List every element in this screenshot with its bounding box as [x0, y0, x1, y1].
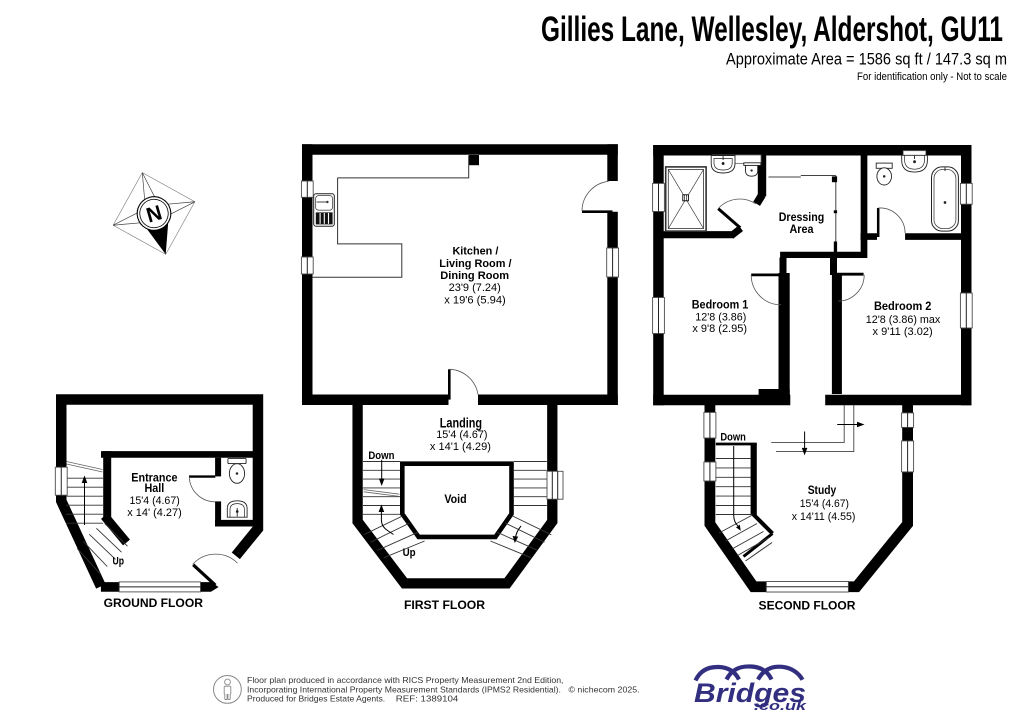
- svg-text:x 14'11 (4.55): x 14'11 (4.55): [792, 511, 856, 523]
- svg-text:For identification only - Not: For identification only - Not to scale: [857, 71, 1007, 83]
- svg-text:12'8 (3.86) max: 12'8 (3.86) max: [866, 314, 941, 326]
- svg-text:15'4 (4.67): 15'4 (4.67): [436, 429, 487, 441]
- svg-text:x 9'8 (2.95): x 9'8 (2.95): [692, 323, 747, 335]
- svg-text:Landing: Landing: [440, 414, 482, 430]
- svg-text:FIRST FLOOR: FIRST FLOOR: [404, 598, 485, 612]
- svg-text:Bedroom 2: Bedroom 2: [874, 301, 932, 313]
- svg-text:Void: Void: [444, 494, 466, 506]
- svg-text:Gillies Lane, Wellesley, Alder: Gillies Lane, Wellesley, Aldershot, GU11: [541, 10, 1003, 49]
- svg-text:x 19'6 (5.94): x 19'6 (5.94): [444, 295, 506, 307]
- svg-text:SECOND FLOOR: SECOND FLOOR: [759, 599, 856, 613]
- svg-text:REF: 1389104: REF: 1389104: [396, 693, 459, 703]
- svg-text:Area: Area: [790, 224, 815, 236]
- svg-text:Up: Up: [403, 547, 416, 559]
- svg-text:Approximate Area = 1586 sq ft: Approximate Area = 1586 sq ft / 147.3 sq…: [726, 50, 1007, 69]
- svg-text:Up: Up: [113, 556, 125, 568]
- svg-text:Down: Down: [720, 432, 745, 444]
- svg-text:15'4 (4.67): 15'4 (4.67): [800, 498, 849, 510]
- svg-text:Dining Room: Dining Room: [440, 270, 509, 282]
- svg-text:15'4 (4.67): 15'4 (4.67): [129, 495, 179, 507]
- svg-text:Down: Down: [368, 450, 394, 462]
- svg-text:x 9'11 (3.02): x 9'11 (3.02): [873, 326, 933, 338]
- svg-text:23'9 (7.24): 23'9 (7.24): [449, 282, 501, 294]
- svg-text:© nichecom 2025.: © nichecom 2025.: [569, 684, 640, 694]
- svg-text:GROUND FLOOR: GROUND FLOOR: [104, 596, 203, 610]
- svg-text:x 14'1 (4.29): x 14'1 (4.29): [430, 441, 491, 453]
- svg-text:Study: Study: [808, 485, 837, 497]
- svg-text:Produced for Bridges Estate Ag: Produced for Bridges Estate Agents.: [247, 693, 385, 703]
- svg-text:Dressing: Dressing: [779, 212, 825, 224]
- svg-text:Living Room /: Living Room /: [439, 258, 511, 270]
- svg-text:Bedroom 1: Bedroom 1: [692, 300, 749, 312]
- svg-text:Kitchen /: Kitchen /: [452, 246, 498, 258]
- svg-text:12'8 (3.86): 12'8 (3.86): [695, 312, 746, 324]
- svg-text:Hall: Hall: [145, 481, 165, 495]
- svg-text:x 14' (4.27): x 14' (4.27): [127, 507, 182, 519]
- svg-text:.co.uk: .co.uk: [754, 698, 807, 713]
